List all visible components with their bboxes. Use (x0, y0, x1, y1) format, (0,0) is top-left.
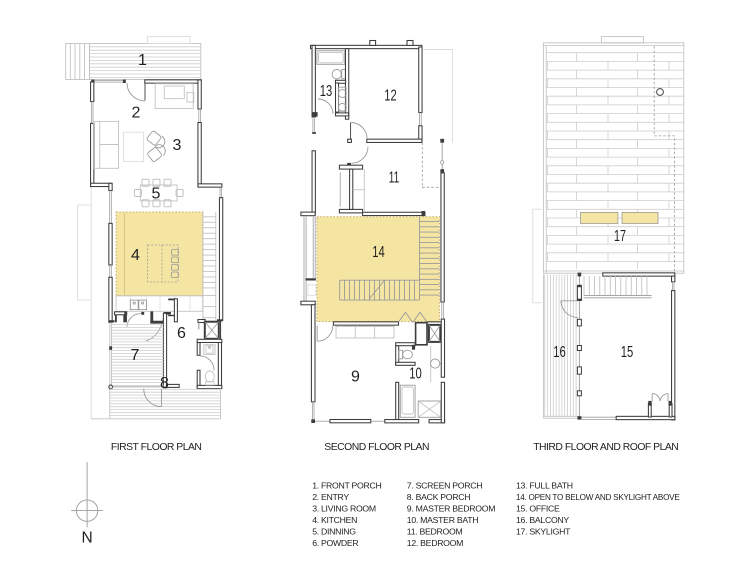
svg-text:7: 7 (131, 347, 140, 364)
svg-text:14: 14 (372, 244, 385, 261)
svg-text:5. DINNING: 5. DINNING (312, 526, 356, 536)
svg-text:13. FULL BATH: 13. FULL BATH (516, 480, 573, 490)
svg-text:N: N (81, 530, 92, 547)
svg-text:3: 3 (173, 137, 182, 154)
svg-text:7. SCREEN PORCH: 7. SCREEN PORCH (407, 480, 482, 490)
svg-text:11. BEDROOM: 11. BEDROOM (407, 526, 463, 536)
svg-text:1: 1 (138, 52, 147, 69)
svg-text:8: 8 (160, 375, 169, 392)
svg-text:8. BACK PORCH: 8. BACK PORCH (407, 492, 470, 502)
svg-text:6: 6 (177, 325, 186, 342)
svg-text:14. OPEN TO BELOW AND SKYLIGHT: 14. OPEN TO BELOW AND SKYLIGHT ABOVE (516, 492, 680, 502)
svg-text:10: 10 (409, 366, 422, 383)
svg-text:16. BALCONY: 16. BALCONY (516, 515, 569, 525)
svg-text:9. MASTER BEDROOM: 9. MASTER BEDROOM (407, 503, 495, 513)
svg-text:THIRD FLOOR AND ROOF PLAN: THIRD FLOOR AND ROOF PLAN (533, 442, 678, 453)
svg-text:SECOND FLOOR PLAN: SECOND FLOOR PLAN (324, 442, 429, 453)
svg-text:4: 4 (131, 247, 140, 264)
svg-text:15: 15 (621, 344, 634, 361)
svg-text:FIRST FLOOR PLAN: FIRST FLOOR PLAN (111, 442, 202, 453)
svg-text:12. BEDROOM: 12. BEDROOM (407, 538, 463, 548)
svg-text:17: 17 (614, 228, 626, 245)
svg-text:6. POWDER: 6. POWDER (312, 538, 358, 548)
svg-text:13: 13 (320, 83, 333, 100)
svg-text:5: 5 (152, 186, 161, 203)
svg-text:1. FRONT PORCH: 1. FRONT PORCH (312, 480, 381, 490)
svg-text:15. OFFICE: 15. OFFICE (516, 503, 560, 513)
svg-text:17. SKYLIGHT: 17. SKYLIGHT (516, 526, 571, 536)
svg-text:3. LIVING ROOM: 3. LIVING ROOM (312, 503, 376, 513)
svg-text:16: 16 (553, 344, 566, 361)
svg-text:12: 12 (384, 88, 397, 105)
svg-text:10. MASTER BATH: 10. MASTER BATH (407, 515, 478, 525)
svg-text:11: 11 (389, 170, 400, 187)
svg-text:9: 9 (351, 369, 360, 386)
svg-text:2: 2 (132, 105, 141, 122)
svg-text:2. ENTRY: 2. ENTRY (312, 492, 349, 502)
svg-text:4. KITCHEN: 4. KITCHEN (312, 515, 357, 525)
